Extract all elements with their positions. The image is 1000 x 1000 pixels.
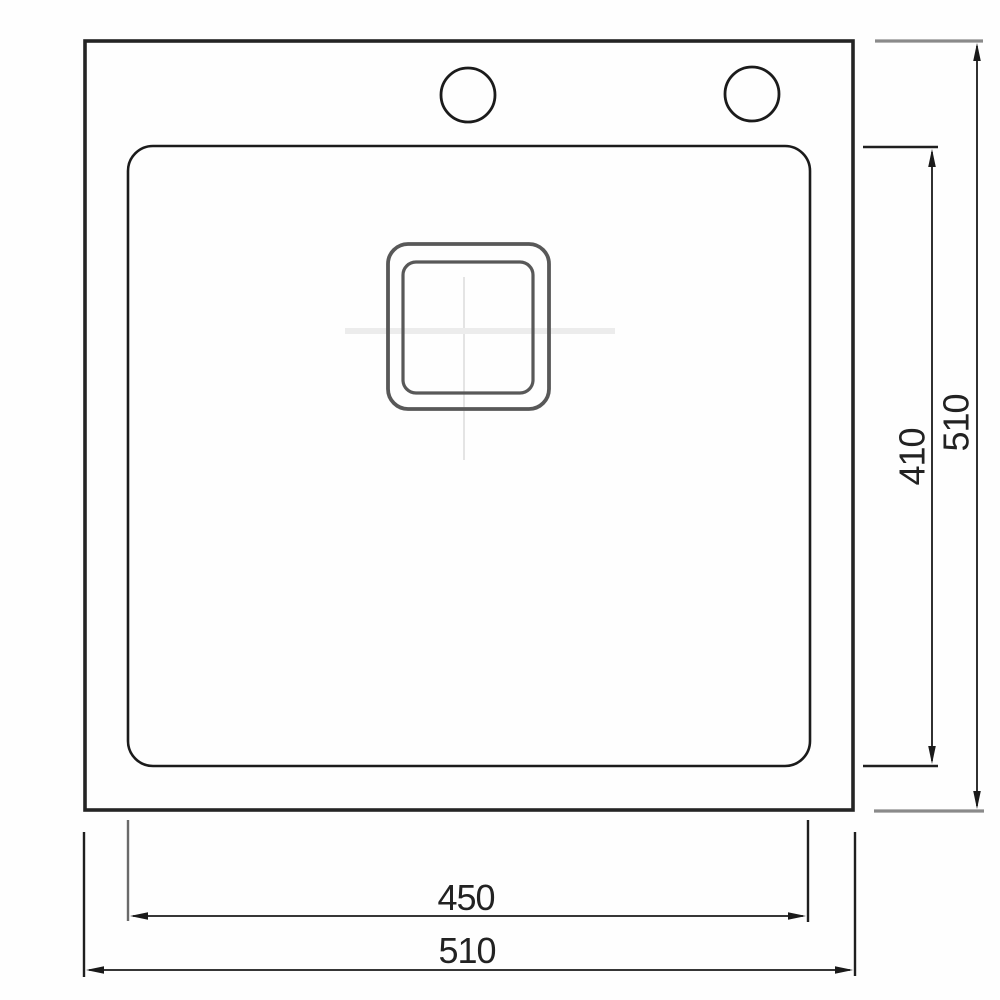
arrowhead-left bbox=[130, 912, 148, 920]
dim-label-inner-width: 450 bbox=[437, 877, 494, 918]
sink-technical-drawing: 510 410 450 510 bbox=[0, 0, 1000, 1000]
dim-label-outer-height: 510 bbox=[936, 394, 977, 451]
dim-outer-height: 510 bbox=[874, 41, 984, 811]
arrowhead-up bbox=[928, 149, 936, 167]
dim-inner-height: 410 bbox=[863, 147, 938, 766]
drain-inner-rim bbox=[403, 262, 533, 393]
dim-label-inner-height: 410 bbox=[892, 428, 933, 485]
sink-basin bbox=[128, 146, 810, 766]
dim-inner-width: 450 bbox=[128, 820, 808, 922]
arrowhead-down bbox=[928, 746, 936, 764]
faucet-hole-right bbox=[725, 67, 779, 121]
dim-label-outer-width: 510 bbox=[438, 930, 495, 971]
arrowhead-up bbox=[973, 43, 981, 61]
arrowhead-right bbox=[835, 966, 853, 974]
arrowhead-right bbox=[788, 912, 806, 920]
faucet-hole-left bbox=[441, 68, 495, 122]
arrowhead-left bbox=[86, 966, 104, 974]
arrowhead-down bbox=[973, 791, 981, 809]
drawing-svg: 510 410 450 510 bbox=[0, 0, 1000, 1000]
drain-outer-rim bbox=[388, 244, 549, 409]
sink-outer-edge bbox=[85, 41, 853, 810]
